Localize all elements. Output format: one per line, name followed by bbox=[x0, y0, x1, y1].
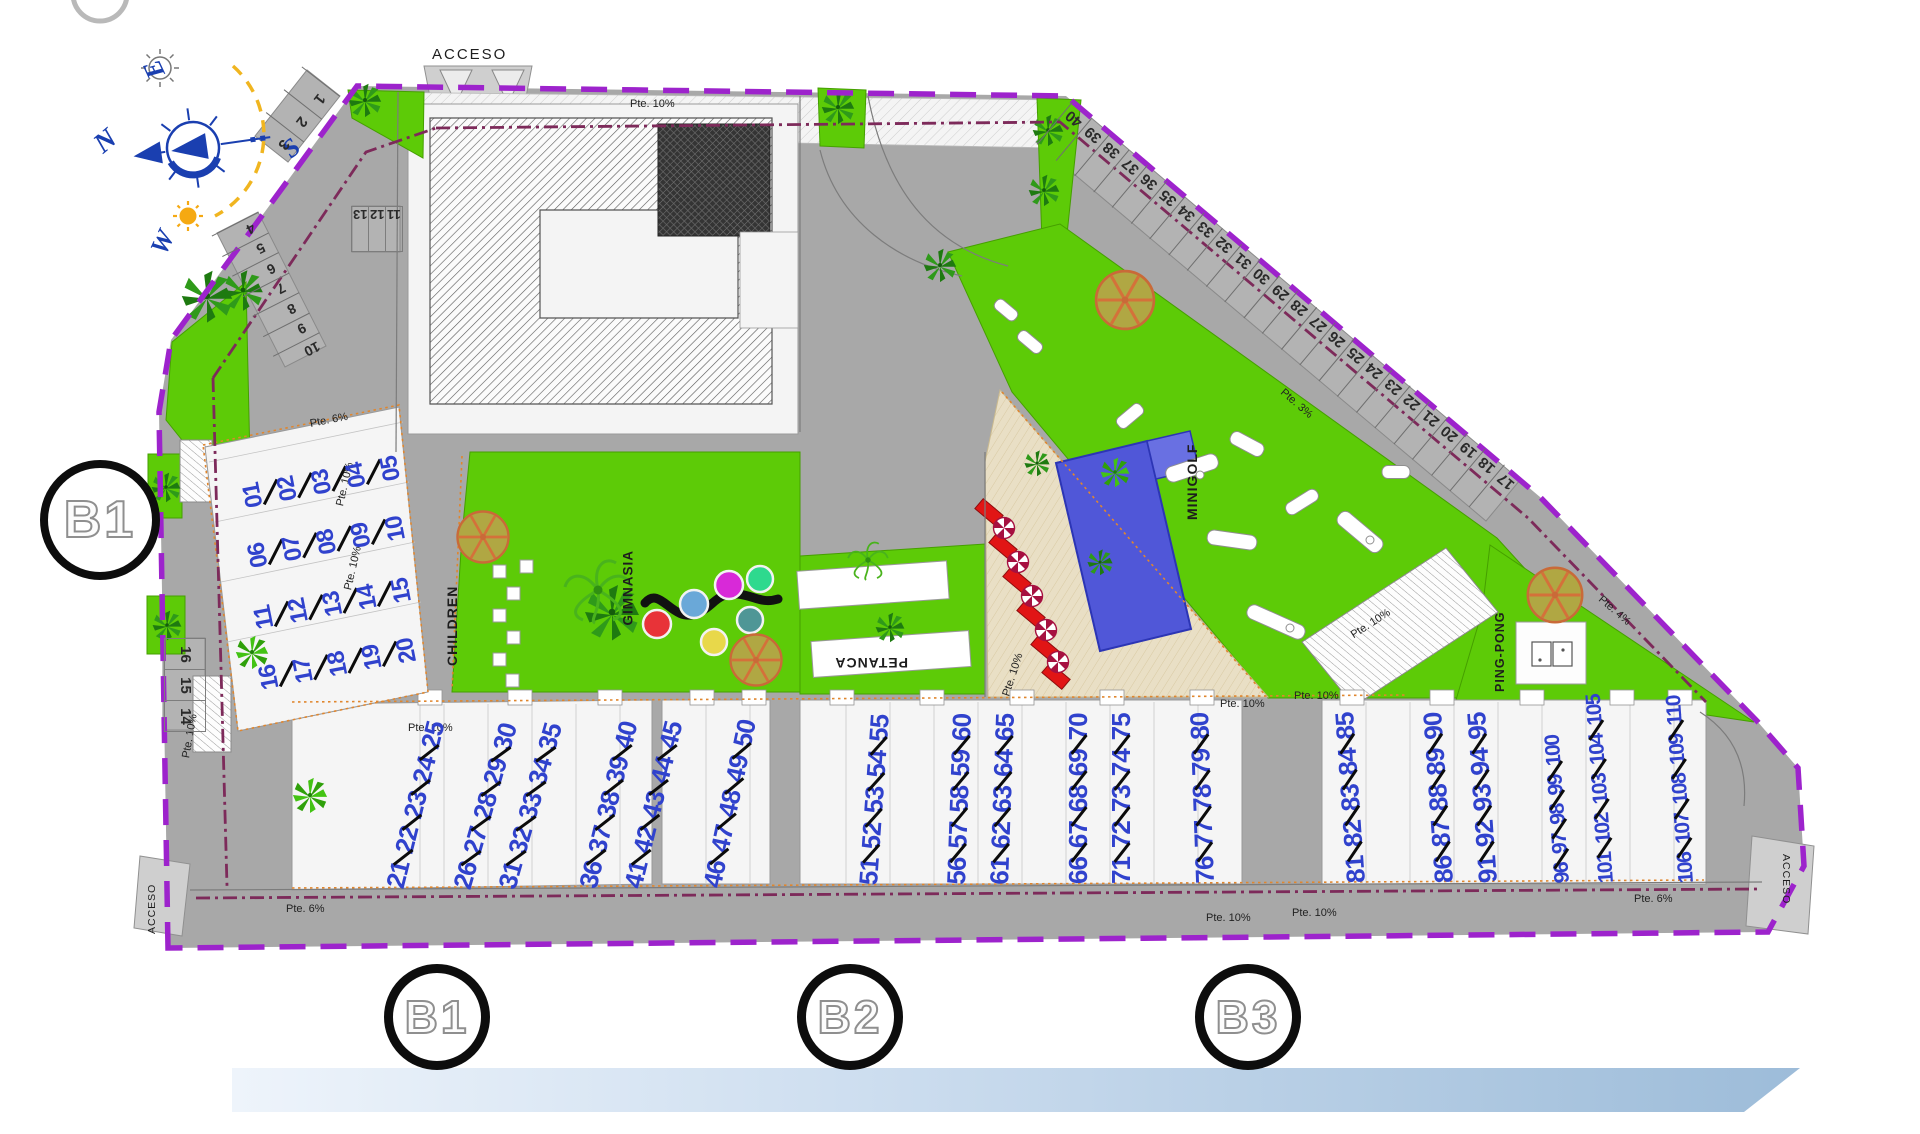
unit-number-cell: 72 bbox=[1106, 813, 1137, 848]
unit-number: 110 bbox=[1662, 695, 1688, 726]
unit-number-cell: 90 bbox=[1417, 712, 1450, 741]
unit-number: 95 bbox=[1461, 712, 1494, 741]
unit-number: 01 bbox=[237, 480, 269, 511]
block-badge-B1-bottom: B1 bbox=[384, 964, 490, 1070]
unit-number: 87 bbox=[1425, 819, 1458, 848]
petanque-area-label: PETANCA bbox=[834, 655, 908, 671]
unit-number: 65 bbox=[989, 713, 1021, 741]
pingpong-table bbox=[1532, 642, 1551, 666]
unit-number-cell: 71 bbox=[1106, 849, 1137, 884]
unit-number-cell: 60 bbox=[946, 713, 978, 741]
parking-column-14-16: 161514 bbox=[164, 639, 206, 732]
terrace bbox=[740, 232, 798, 328]
unit-number-cell: 56 bbox=[941, 849, 973, 885]
unit-number-cell: 81 bbox=[1339, 847, 1372, 884]
unit-number-cell: 77 bbox=[1188, 812, 1220, 848]
unit-number: 17 bbox=[288, 655, 320, 686]
unit-number-cell: 95 bbox=[1461, 712, 1494, 741]
unit-number-cell: 105 bbox=[1582, 694, 1608, 726]
unit-number-cell: 55 bbox=[863, 714, 896, 743]
orange-tree-icon bbox=[731, 635, 782, 686]
unit-number: 90 bbox=[1417, 712, 1450, 741]
unit-number: 18 bbox=[322, 648, 354, 679]
gym-area-label: GIMNASIA bbox=[621, 550, 636, 626]
unit-number: 69 bbox=[1063, 749, 1094, 776]
unit-number-cell: 99 bbox=[1543, 766, 1569, 796]
unit-number: 67 bbox=[1063, 821, 1094, 848]
unit-number-cell: 52 bbox=[856, 813, 889, 850]
unit-number: 94 bbox=[1464, 747, 1497, 776]
block-badge-label: B1 bbox=[405, 990, 470, 1044]
unit-number: 72 bbox=[1106, 821, 1137, 848]
parking-number: 14 bbox=[164, 700, 206, 732]
unit-number: 07 bbox=[277, 533, 309, 564]
block-badge-label: B1 bbox=[64, 490, 136, 550]
unit-number: 02 bbox=[272, 473, 304, 504]
unit-number-cell: 15 bbox=[386, 574, 417, 606]
parasol-icon bbox=[994, 518, 1015, 539]
unit-number-cell: 110 bbox=[1662, 695, 1688, 726]
unit-number-cell: 58 bbox=[944, 777, 976, 813]
parking-number: 15 bbox=[164, 669, 206, 701]
unit-number: 71 bbox=[1106, 857, 1137, 884]
unit-number-cell: 106 bbox=[1672, 844, 1699, 884]
unit-column-76-80: 7677787980 bbox=[1184, 712, 1221, 884]
unit-number-cell: 20 bbox=[391, 634, 422, 666]
unit-number-cell: 76 bbox=[1189, 848, 1221, 884]
unit-number-cell: 51 bbox=[853, 849, 886, 886]
unit-number: 58 bbox=[944, 785, 976, 813]
unit-number: 93 bbox=[1466, 783, 1499, 812]
unit-number-cell: 57 bbox=[942, 813, 974, 849]
site-plan: N E S W ACCESO ACCESO ACCESO CHILDREN GI… bbox=[0, 0, 1920, 1134]
unit-number: 63 bbox=[987, 785, 1019, 813]
unit-number-cell: 91 bbox=[1471, 847, 1504, 884]
unit-column-71-75: 7172737475 bbox=[1106, 713, 1137, 884]
unit-number: 08 bbox=[311, 526, 343, 557]
unit-number: 99 bbox=[1543, 774, 1568, 796]
unit-number-cell: 59 bbox=[945, 741, 977, 777]
unit-number: 83 bbox=[1334, 783, 1367, 812]
unit-number: 14 bbox=[351, 582, 383, 613]
unit-number: 70 bbox=[1063, 713, 1094, 740]
access-label-top: ACCESO bbox=[432, 46, 507, 63]
block-badge-label: B3 bbox=[1216, 990, 1281, 1044]
orange-tree-icon bbox=[1528, 568, 1582, 622]
slope-label: Pte. 10% bbox=[630, 98, 675, 110]
block-badge-label: B2 bbox=[818, 990, 883, 1044]
unit-number-cell: 92 bbox=[1468, 811, 1501, 848]
unit-number: 78 bbox=[1187, 784, 1219, 812]
unit-number-cell: 97 bbox=[1547, 825, 1573, 855]
unit-number: 68 bbox=[1063, 785, 1094, 812]
sun-filled-icon bbox=[173, 201, 203, 231]
unit-number-cell: 86 bbox=[1427, 847, 1460, 884]
orange-tree-icon bbox=[1096, 271, 1154, 329]
unit-number-cell: 66 bbox=[1063, 849, 1094, 884]
minigolf-area-label: MINIGOLF bbox=[1184, 444, 1200, 520]
unit-number-cell: 74 bbox=[1106, 741, 1137, 776]
cropped-badge bbox=[73, 0, 127, 21]
unit-number: 57 bbox=[942, 821, 974, 849]
unit-number-cell: 83 bbox=[1334, 775, 1367, 812]
block-badge-B3-bottom: B3 bbox=[1195, 964, 1301, 1070]
dark-roof-section bbox=[658, 124, 770, 236]
block-badge-B2-bottom: B2 bbox=[797, 964, 903, 1070]
unit-number: 84 bbox=[1332, 747, 1365, 776]
children-area-label: CHILDREN bbox=[444, 586, 460, 666]
unit-number: 03 bbox=[306, 466, 338, 497]
parking-number: 13 bbox=[351, 206, 369, 252]
unit-number-cell: 53 bbox=[858, 777, 891, 814]
unit-column-56-60: 5657585960 bbox=[941, 713, 978, 885]
unit-number-cell: 94 bbox=[1463, 739, 1496, 776]
unit-number: 59 bbox=[945, 749, 977, 777]
slope-label: Pte. 10% bbox=[1206, 912, 1251, 924]
unit-number-cell: 88 bbox=[1422, 775, 1455, 812]
unit-number: 62 bbox=[985, 821, 1017, 849]
unit-number-cell: 65 bbox=[989, 713, 1021, 741]
unit-number-cell: 89 bbox=[1419, 739, 1452, 776]
unit-number-cell: 73 bbox=[1106, 777, 1137, 812]
unit-number-cell: 84 bbox=[1331, 739, 1364, 776]
unit-number: 79 bbox=[1185, 748, 1217, 776]
unit-number: 75 bbox=[1106, 713, 1137, 740]
unit-number-cell: 63 bbox=[987, 777, 1019, 813]
unit-number: 09 bbox=[345, 520, 377, 551]
unit-number: 92 bbox=[1469, 819, 1502, 848]
unit-number-cell: 82 bbox=[1336, 811, 1369, 848]
unit-number: 61 bbox=[984, 857, 1016, 885]
unit-number: 91 bbox=[1471, 855, 1504, 884]
unit-number: 56 bbox=[941, 857, 973, 885]
unit-number: 66 bbox=[1063, 857, 1094, 884]
block-badge-B1-left: B1 bbox=[40, 460, 160, 580]
unit-number: 74 bbox=[1106, 749, 1137, 776]
unit-number: 54 bbox=[861, 750, 894, 779]
unit-number-cell: 101 bbox=[1592, 844, 1619, 884]
unit-number: 80 bbox=[1184, 712, 1216, 740]
unit-number: 11 bbox=[248, 602, 280, 633]
unit-number-cell: 70 bbox=[1063, 713, 1094, 740]
parasol-icon bbox=[1048, 652, 1069, 673]
unit-number-cell: 64 bbox=[988, 741, 1020, 777]
orange-tree-icon bbox=[458, 512, 509, 563]
slope-label: Pte. 10% bbox=[1220, 698, 1265, 710]
unit-number: 51 bbox=[853, 857, 886, 886]
unit-number: 12 bbox=[283, 595, 315, 626]
unit-number: 06 bbox=[242, 540, 274, 571]
unit-number-cell: 69 bbox=[1063, 741, 1094, 776]
unit-number-cell: 54 bbox=[861, 742, 894, 779]
unit-number: 05 bbox=[375, 453, 407, 484]
slope-label: Pte. 6% bbox=[286, 903, 325, 915]
access-label-bottom-right: ACCESO bbox=[1780, 854, 1792, 904]
unit-number-cell: 68 bbox=[1063, 777, 1094, 812]
unit-number: 10 bbox=[380, 513, 412, 544]
unit-number-cell: 75 bbox=[1106, 713, 1137, 740]
unit-number: 88 bbox=[1422, 783, 1455, 812]
unit-number: 73 bbox=[1106, 785, 1137, 812]
unit-number: 19 bbox=[356, 642, 388, 673]
unit-number-cell: 62 bbox=[985, 813, 1017, 849]
unit-column-61-65: 6162636465 bbox=[984, 713, 1021, 885]
unit-number: 105 bbox=[1582, 694, 1608, 726]
unit-number-cell: 96 bbox=[1549, 854, 1575, 884]
unit-number-cell: 05 bbox=[375, 452, 406, 484]
parking-number: 11 bbox=[385, 206, 403, 252]
pingpong-area-label: PING-PONG bbox=[1493, 611, 1507, 692]
unit-number-cell: 67 bbox=[1063, 813, 1094, 848]
unit-number: 81 bbox=[1339, 855, 1372, 884]
unit-number-cell: 78 bbox=[1186, 776, 1218, 812]
unit-number: 04 bbox=[340, 460, 372, 491]
unit-number: 52 bbox=[856, 821, 889, 850]
unit-number: 82 bbox=[1337, 819, 1370, 848]
apartment-building bbox=[408, 104, 798, 434]
unit-number-cell: 93 bbox=[1466, 775, 1499, 812]
parasol-icon bbox=[1036, 620, 1057, 641]
footer-gradient-bar bbox=[232, 1068, 1800, 1112]
parking-row-11-13: 131211 bbox=[352, 206, 403, 252]
parking-number: 12 bbox=[368, 206, 386, 252]
unit-number-cell: 10 bbox=[380, 512, 411, 544]
unit-number: 16 bbox=[253, 662, 285, 693]
unit-number-cell: 85 bbox=[1329, 712, 1362, 741]
slope-label: Pte. 10% bbox=[1294, 690, 1339, 702]
unit-number: 77 bbox=[1188, 820, 1220, 848]
unit-number: 60 bbox=[946, 713, 978, 741]
parasol-icon bbox=[1022, 586, 1043, 607]
unit-column-66-70: 6667686970 bbox=[1063, 713, 1094, 884]
unit-number-cell: 61 bbox=[984, 849, 1016, 885]
parking-number: 16 bbox=[164, 638, 206, 670]
unit-number: 15 bbox=[386, 575, 418, 606]
site-plan-drawing bbox=[0, 0, 1920, 1134]
pingpong-area bbox=[1516, 622, 1586, 684]
unit-number-cell: 80 bbox=[1184, 712, 1216, 740]
unit-number: 76 bbox=[1189, 856, 1221, 884]
unit-number: 89 bbox=[1420, 747, 1453, 776]
unit-number-cell: 79 bbox=[1185, 740, 1217, 776]
unit-number-cell: 87 bbox=[1424, 811, 1457, 848]
parasol-icon bbox=[1008, 552, 1029, 573]
unit-number: 86 bbox=[1427, 855, 1460, 884]
unit-number: 13 bbox=[317, 588, 349, 619]
unit-number: 85 bbox=[1329, 712, 1362, 741]
unit-number: 20 bbox=[391, 635, 423, 666]
unit-number: 55 bbox=[863, 714, 896, 743]
access-label-bottom-left: ACCESO bbox=[146, 884, 158, 934]
unit-number-cell: 98 bbox=[1545, 795, 1571, 825]
slope-label: Pte. 6% bbox=[1634, 893, 1673, 905]
slope-label: Pte. 10% bbox=[1292, 907, 1337, 919]
unit-number: 64 bbox=[988, 749, 1020, 777]
unit-number: 53 bbox=[858, 785, 891, 814]
